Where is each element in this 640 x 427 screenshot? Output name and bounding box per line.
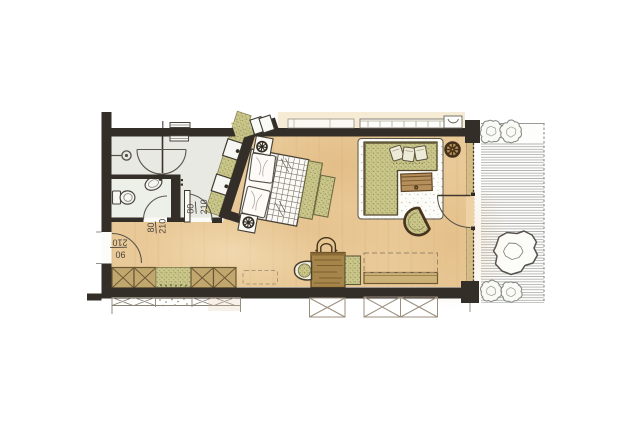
- svg-text:90: 90: [115, 250, 125, 260]
- svg-text:80: 80: [186, 204, 196, 214]
- svg-text:80: 80: [146, 222, 156, 232]
- svg-text:210: 210: [112, 237, 127, 247]
- svg-text:210: 210: [157, 219, 167, 234]
- svg-text:210: 210: [199, 199, 209, 214]
